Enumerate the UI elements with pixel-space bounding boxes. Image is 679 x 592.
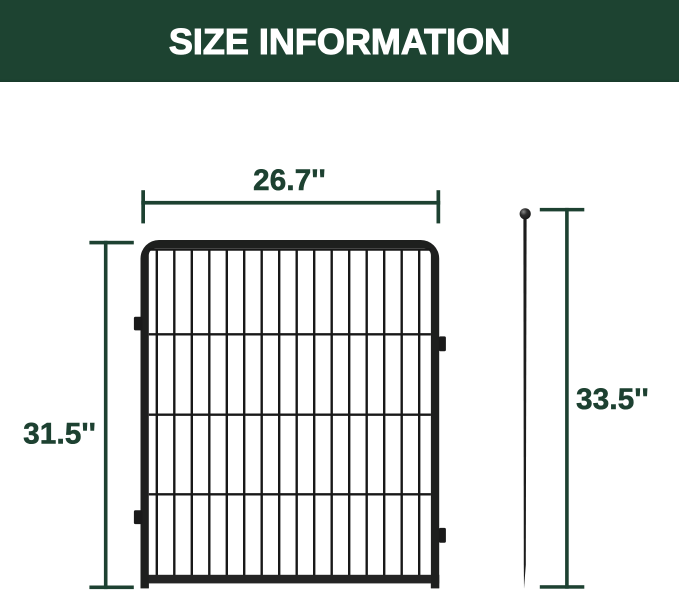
svg-text:31.5'': 31.5''	[23, 418, 96, 451]
svg-text:33.5'': 33.5''	[576, 383, 649, 416]
svg-text:26.7'': 26.7''	[253, 164, 326, 197]
